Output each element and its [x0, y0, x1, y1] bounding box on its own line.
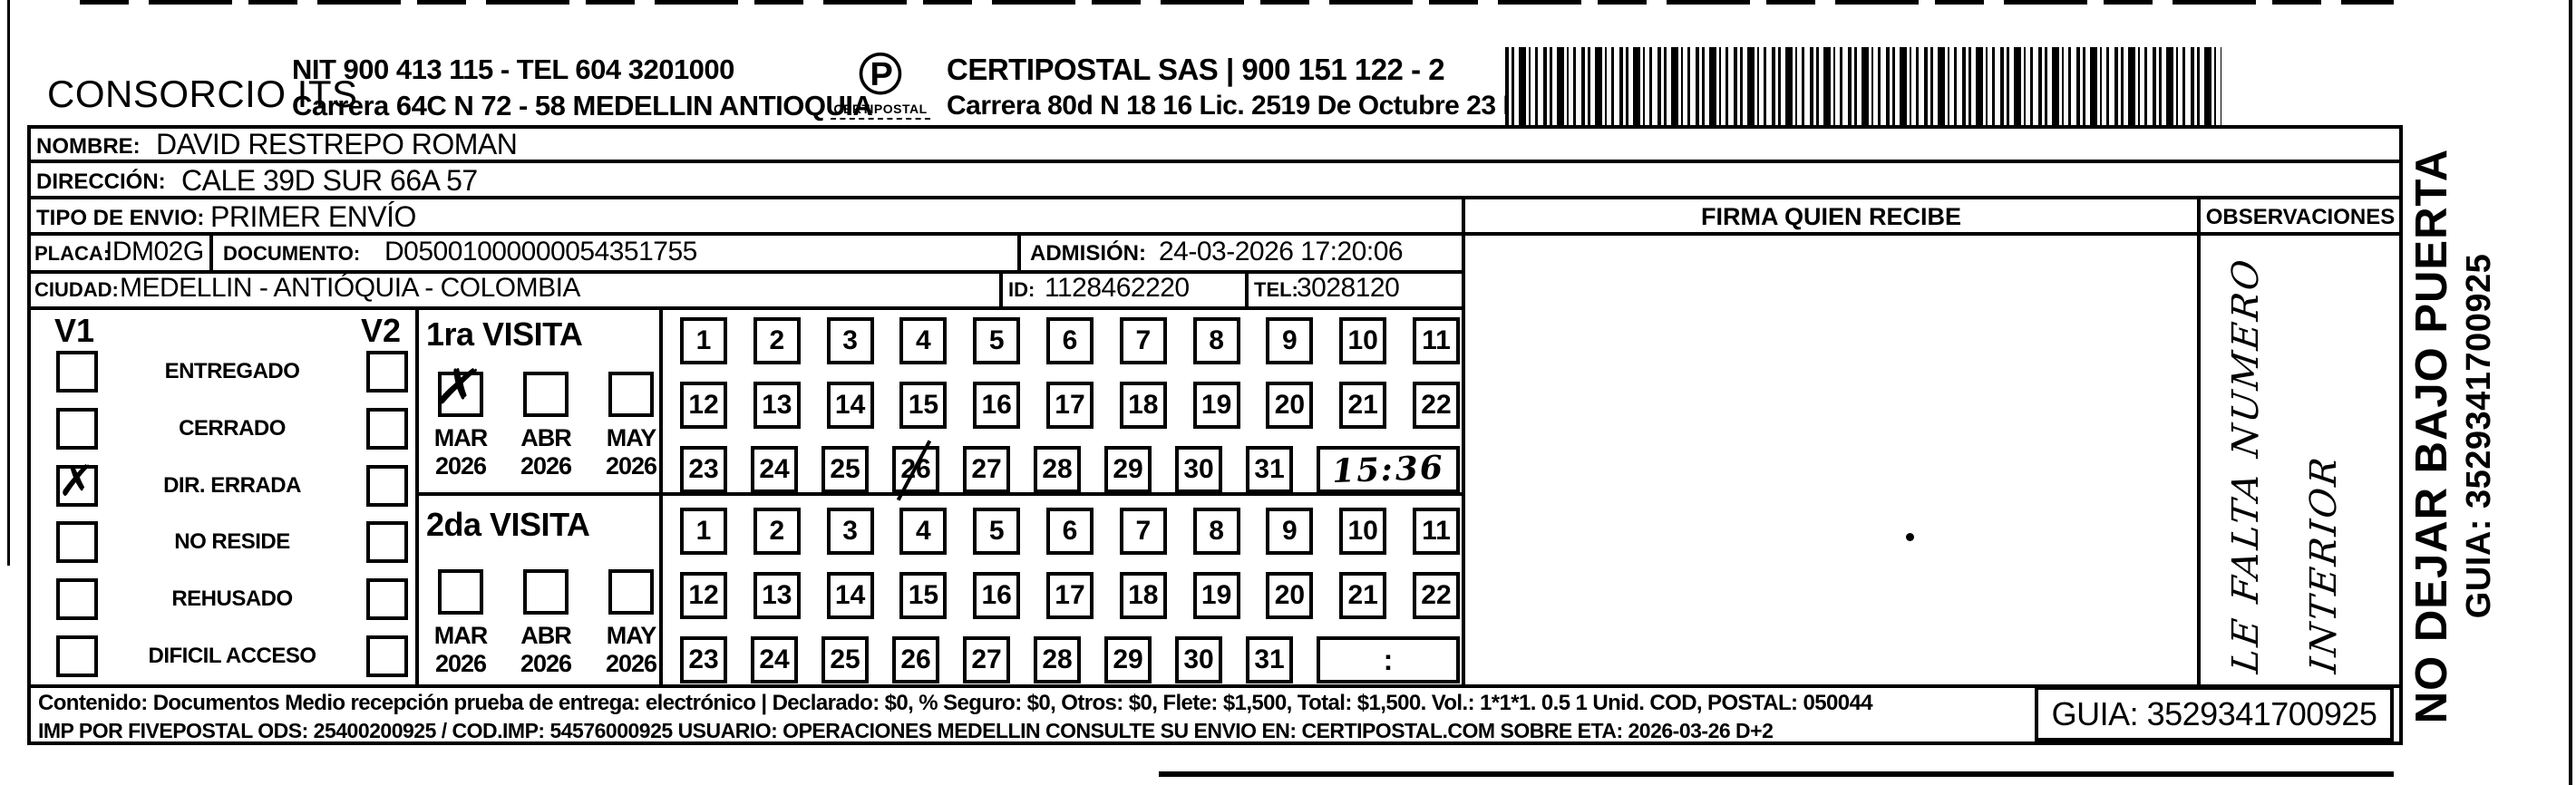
company-nit-line: NIT 900 413 115 - TEL 604 3201000: [292, 53, 734, 87]
day-cell-21: 21: [1339, 382, 1386, 429]
nombre-label: NOMBRE:: [36, 134, 141, 160]
direccion-value: CALE 39D SUR 66A 57: [181, 164, 478, 198]
day-cell-9: 9: [1266, 508, 1313, 555]
tipo-envio-value: PRIMER ENVÍO: [210, 200, 416, 234]
month-checkbox-abr: [523, 569, 569, 615]
day-row: 23242526272829303115:36: [680, 446, 1460, 493]
certipostal-logo-caption: CERTIPOSTAL: [831, 102, 930, 120]
day-cell-3: 3: [827, 317, 874, 364]
divider-line: [1462, 196, 1465, 684]
day-cell-25: 25: [821, 636, 869, 683]
v1-checkbox-cerrado: [56, 408, 98, 450]
observations-note-line2: INTERIOR: [2285, 248, 2363, 678]
tipo-envio-label: TIPO DE ENVIO:: [36, 206, 204, 231]
day-cell-8: 8: [1193, 317, 1240, 364]
month-label: MAR: [424, 622, 497, 650]
id-label: ID:: [1008, 278, 1035, 302]
divider-line: [2197, 196, 2201, 684]
day-cell-2: 2: [753, 508, 801, 555]
v2-checkbox-dir-errada: [366, 465, 408, 507]
handwritten-x-mark: ✗: [57, 459, 95, 503]
day-cell-8: 8: [1193, 508, 1240, 555]
day-cell-7: 7: [1120, 508, 1167, 555]
footer-imp-line: IMP POR FIVEPOSTAL ODS: 25400200925 / CO…: [38, 719, 1773, 743]
status-label: NO RESIDE: [98, 529, 366, 555]
day-row: 1234567891011: [680, 317, 1460, 364]
v2-checkbox-rehusado: [366, 578, 408, 620]
admision-label: ADMISIÓN:: [1030, 241, 1146, 267]
top-perforation-line: [80, 0, 2394, 5]
divider-line: [1245, 270, 1249, 306]
visit1-title: 1ra VISITA: [426, 315, 582, 354]
day-cell-16: 16: [973, 572, 1020, 619]
day-cell-24: 24: [751, 446, 798, 493]
day-row: 232425262728293031:: [680, 636, 1460, 683]
day-cell-27: 27: [963, 636, 1010, 683]
day-cell-22: 22: [1413, 572, 1460, 619]
month-checkbox-may: [608, 569, 654, 615]
status-label: DIFICIL ACCESO: [98, 644, 366, 669]
month-option-mar: ✗MAR2026: [424, 372, 497, 480]
day-cell-20: 20: [1266, 572, 1313, 619]
footer-content-line: Contenido: Documentos Medio recepción pr…: [38, 691, 1872, 716]
day-cell-27: 27: [963, 446, 1010, 493]
day-cell-29: 29: [1104, 446, 1152, 493]
status-row: CERRADO: [33, 407, 412, 451]
status-row: ✗DIR. ERRADA: [33, 464, 412, 508]
day-cell-14: 14: [827, 572, 874, 619]
day-cell-1: 1: [680, 317, 727, 364]
visit1-months: ✗MAR2026ABR2026MAY2026: [424, 372, 667, 480]
tel-value: 3028120: [1297, 273, 1399, 304]
month-year: 2026: [510, 650, 582, 678]
visit-time-box: :: [1317, 636, 1460, 683]
status-label: ENTREGADO: [98, 359, 366, 384]
day-cell-10: 10: [1339, 508, 1386, 555]
day-cell-11: 11: [1413, 317, 1460, 364]
status-label: DIR. ERRADA: [98, 473, 366, 499]
v2-checkbox-no-reside: [366, 521, 408, 563]
day-cell-30: 30: [1175, 636, 1222, 683]
day-cell-26: 26: [892, 446, 939, 493]
day-cell-29: 29: [1104, 636, 1152, 683]
bottom-scan-line: [1159, 771, 2394, 777]
day-cell-3: 3: [827, 508, 874, 555]
day-cell-28: 28: [1034, 446, 1081, 493]
documento-label: DOCUMENTO:: [223, 242, 360, 266]
side-vertical-text: NO DEJAR BAJO PUERTA GUIA: 3529341700925: [2406, 129, 2571, 743]
left-scan-edge: [7, 0, 10, 566]
day-cell-16: 16: [973, 382, 1020, 429]
day-cell-13: 13: [753, 382, 801, 429]
day-cell-19: 19: [1193, 572, 1240, 619]
signature-area-dot: [1906, 533, 1914, 541]
v1-checkbox-dificil-acceso: [56, 635, 98, 677]
ciudad-label: CIUDAD:: [34, 278, 119, 302]
month-checkbox-mar: [438, 569, 483, 615]
visit-time-box: 15:36: [1317, 446, 1460, 493]
v1-checkbox-entregado: [56, 351, 98, 392]
month-year: 2026: [595, 650, 667, 678]
day-cell-28: 28: [1034, 636, 1081, 683]
day-cell-7: 7: [1120, 317, 1167, 364]
side-guia-number: GUIA: 3529341700925: [2457, 129, 2501, 743]
documento-value: D05001000000054351755: [384, 237, 697, 267]
month-option-mar: MAR2026: [424, 569, 497, 678]
day-cell-22: 22: [1413, 382, 1460, 429]
day-cell-15: 15: [899, 382, 947, 429]
month-label: ABR: [510, 424, 582, 452]
day-cell-5: 5: [973, 317, 1020, 364]
v2-column-header: V2: [361, 312, 401, 350]
observations-note-line1: LE FALTA NUMERO: [2207, 248, 2285, 678]
placa-label: PLACA:: [34, 242, 110, 266]
no-dejar-bajo-puerta-warning: NO DEJAR BAJO PUERTA: [2406, 129, 2457, 743]
v2-checkbox-dificil-acceso: [366, 635, 408, 677]
month-checkbox-mar: ✗: [438, 372, 483, 417]
day-cell-25: 25: [821, 446, 869, 493]
day-cell-1: 1: [680, 508, 727, 555]
day-cell-23: 23: [680, 636, 727, 683]
month-checkbox-may: [608, 372, 654, 417]
status-row: REHUSADO: [33, 577, 412, 621]
admision-value: 24-03-2026 17:20:06: [1159, 237, 1403, 267]
v1-checkbox-no-reside: [56, 521, 98, 563]
day-cell-11: 11: [1413, 508, 1460, 555]
tracking-barcode: [1505, 47, 2221, 125]
divider-line: [1017, 232, 1021, 270]
v2-checkbox-entregado: [366, 351, 408, 392]
day-cell-9: 9: [1266, 317, 1313, 364]
day-row: 1234567891011: [680, 508, 1460, 555]
nombre-value: DAVID RESTREPO ROMAN: [156, 128, 517, 161]
v2-checkbox-cerrado: [366, 408, 408, 450]
day-cell-24: 24: [751, 636, 798, 683]
day-cell-31: 31: [1246, 446, 1293, 493]
day-cell-2: 2: [753, 317, 801, 364]
day-cell-6: 6: [1046, 317, 1094, 364]
month-option-may: MAY2026: [595, 569, 667, 678]
day-cell-17: 17: [1046, 572, 1094, 619]
divider-line: [999, 270, 1003, 306]
month-checkbox-abr: [523, 372, 569, 417]
month-year: 2026: [424, 452, 497, 480]
v1-checkbox-dir-errada: ✗: [56, 465, 98, 507]
month-year: 2026: [510, 452, 582, 480]
certipostal-company-line: CERTIPOSTAL SAS | 900 151 122 - 2: [947, 53, 1444, 87]
day-cell-21: 21: [1339, 572, 1386, 619]
divider-line: [209, 232, 213, 270]
delivery-status-checklist: ENTREGADOCERRADO✗DIR. ERRADANO RESIDEREH…: [33, 350, 412, 678]
observaciones-column-header: OBSERVACIONES: [2201, 205, 2400, 230]
status-label: REHUSADO: [98, 586, 366, 612]
day-cell-4: 4: [899, 508, 947, 555]
day-cell-14: 14: [827, 382, 874, 429]
day-cell-23: 23: [680, 446, 727, 493]
day-cell-13: 13: [753, 572, 801, 619]
day-cell-15: 15: [899, 572, 947, 619]
visit2-months: MAR2026ABR2026MAY2026: [424, 569, 667, 678]
tel-label: TEL:: [1254, 278, 1298, 302]
firma-column-header: FIRMA QUIEN RECIBE: [1465, 203, 2197, 231]
status-label: CERRADO: [98, 416, 366, 441]
month-option-abr: ABR2026: [510, 372, 582, 480]
month-option-may: MAY2026: [595, 372, 667, 480]
direccion-label: DIRECCIÓN:: [36, 170, 166, 195]
month-label: MAY: [595, 424, 667, 452]
status-row: DIFICIL ACCESO: [33, 635, 412, 678]
handwritten-x-mark: ✗: [431, 359, 485, 415]
visit2-title: 2da VISITA: [426, 506, 589, 544]
postal-form-sheet: CONSORCIO ITS NIT 900 413 115 - TEL 604 …: [0, 0, 2576, 785]
visit2-day-grid: 1234567891011121314151617181920212223242…: [680, 508, 1460, 683]
day-cell-19: 19: [1193, 382, 1240, 429]
day-row: 1213141516171819202122: [680, 382, 1460, 429]
certipostal-license-line: Carrera 80d N 18 16 Lic. 2519 De Octubre…: [947, 91, 1602, 121]
day-cell-5: 5: [973, 508, 1020, 555]
day-row: 1213141516171819202122: [680, 572, 1460, 619]
month-year: 2026: [424, 650, 497, 678]
guia-box: GUIA: 3529341700925: [2035, 686, 2394, 741]
visit-time-value: 15:36: [1329, 449, 1447, 490]
id-value: 1128462220: [1045, 273, 1190, 304]
day-cell-6: 6: [1046, 508, 1094, 555]
company-address-line: Carrera 64C N 72 - 58 MEDELLIN ANTIOQUIA: [292, 89, 872, 123]
month-option-abr: ABR2026: [510, 569, 582, 678]
observations-handwritten-note: LE FALTA NUMERO INTERIOR: [2207, 254, 2376, 673]
divider-line: [415, 306, 419, 684]
v1-checkbox-rehusado: [56, 578, 98, 620]
day-cell-10: 10: [1339, 317, 1386, 364]
month-label: MAY: [595, 622, 667, 650]
certipostal-logo: ℗ CERTIPOSTAL: [831, 44, 930, 120]
day-cell-26: 26: [892, 636, 939, 683]
certipostal-logo-icon: ℗: [831, 44, 930, 103]
visit1-day-grid: 1234567891011121314151617181920212223242…: [680, 317, 1460, 493]
day-cell-20: 20: [1266, 382, 1313, 429]
day-cell-12: 12: [680, 382, 727, 429]
divider-line: [27, 306, 1465, 310]
month-label: MAR: [424, 424, 497, 452]
status-row: NO RESIDE: [33, 520, 412, 564]
visit-time-value: :: [1384, 644, 1394, 677]
v1-column-header: V1: [54, 312, 94, 350]
day-cell-30: 30: [1175, 446, 1222, 493]
day-cell-18: 18: [1120, 572, 1167, 619]
placa-value: IDM02G: [105, 237, 204, 267]
month-label: ABR: [510, 622, 582, 650]
month-year: 2026: [595, 452, 667, 480]
day-cell-17: 17: [1046, 382, 1094, 429]
status-row: ENTREGADO: [33, 350, 412, 393]
ciudad-value: MEDELLIN - ANTIÓQUIA - COLOMBIA: [120, 273, 580, 304]
day-cell-31: 31: [1246, 636, 1293, 683]
day-cell-18: 18: [1120, 382, 1167, 429]
guia-number: GUIA: 3529341700925: [2052, 695, 2377, 733]
day-cell-12: 12: [680, 572, 727, 619]
day-cell-4: 4: [899, 317, 947, 364]
